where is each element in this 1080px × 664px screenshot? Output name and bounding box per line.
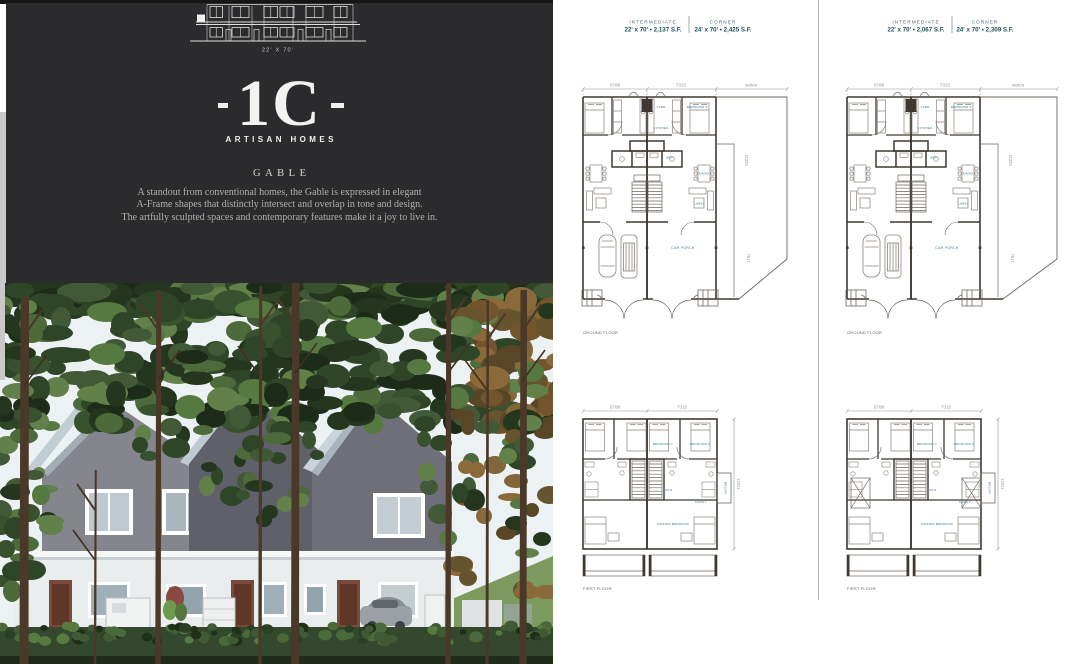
svg-text:12221: 12221 — [736, 478, 741, 490]
svg-text:BATH: BATH — [664, 488, 673, 492]
svg-text:7917: 7917 — [1010, 253, 1015, 263]
svg-text:BALCONY: BALCONY — [988, 482, 992, 495]
svg-text:CAR PORCH: CAR PORCH — [935, 246, 959, 250]
svg-text:7315: 7315 — [676, 83, 687, 88]
svg-text:11333: 11333 — [1008, 154, 1013, 166]
svg-text:FIRST FLOOR: FIRST FLOOR — [847, 586, 876, 591]
svg-text:11333: 11333 — [744, 154, 749, 166]
svg-text:24' x 70' • 2,425 S.F.: 24' x 70' • 2,425 S.F. — [694, 27, 751, 34]
svg-text:24' x 70' • 2,309 S.F.: 24' x 70' • 2,309 S.F. — [956, 27, 1013, 34]
svg-text:BALCONY: BALCONY — [724, 482, 728, 495]
svg-text:YARD: YARD — [656, 105, 666, 109]
svg-text:INTERMEDIATE: INTERMEDIATE — [629, 20, 676, 26]
svg-text:7315: 7315 — [940, 83, 951, 88]
svg-text:FAMILY: FAMILY — [695, 500, 707, 504]
svg-text:BEDROOM 3: BEDROOM 3 — [954, 442, 974, 446]
svg-text:BEDROOM 4: BEDROOM 4 — [951, 105, 971, 109]
svg-text:6788: 6788 — [610, 405, 621, 410]
svg-text:YARD: YARD — [920, 105, 930, 109]
svg-text:7315: 7315 — [677, 405, 688, 410]
svg-text:BEDROOM 3: BEDROOM 3 — [690, 442, 710, 446]
svg-text:BATH: BATH — [667, 156, 674, 160]
svg-text:FIRST FLOOR: FIRST FLOOR — [583, 586, 612, 591]
svg-text:MASTER BEDROOM: MASTER BEDROOM — [657, 522, 689, 526]
svg-text:CORNER: CORNER — [972, 20, 999, 26]
svg-text:varies: varies — [745, 83, 758, 88]
svg-text:MASTER BEDROOM: MASTER BEDROOM — [921, 522, 953, 526]
svg-text:DINING: DINING — [963, 172, 974, 176]
svg-text:DINING: DINING — [699, 172, 710, 176]
svg-text:GROUND FLOOR: GROUND FLOOR — [847, 330, 882, 335]
svg-text:6788: 6788 — [874, 83, 885, 88]
svg-text:BATH: BATH — [931, 156, 938, 160]
svg-text:KITCHEN: KITCHEN — [918, 126, 933, 130]
svg-text:7315: 7315 — [941, 405, 952, 410]
svg-text:BEDROOM 4: BEDROOM 4 — [687, 105, 707, 109]
svg-text:12221: 12221 — [1000, 478, 1005, 490]
svg-text:CAR PORCH: CAR PORCH — [671, 246, 695, 250]
svg-text:BEDROOM 2: BEDROOM 2 — [917, 442, 937, 446]
svg-text:BATH: BATH — [928, 488, 937, 492]
svg-text:LIVING: LIVING — [958, 202, 969, 206]
svg-text:CORNER: CORNER — [710, 20, 737, 26]
svg-text:GROUND FLOOR: GROUND FLOOR — [583, 330, 618, 335]
svg-text:LIVING: LIVING — [694, 202, 705, 206]
svg-text:KITCHEN: KITCHEN — [654, 126, 669, 130]
svg-text:22' x 70' • 2,137 S.F.: 22' x 70' • 2,137 S.F. — [624, 27, 681, 34]
svg-text:22' x 70' • 2,067 S.F.: 22' x 70' • 2,067 S.F. — [887, 27, 944, 34]
svg-text:6788: 6788 — [874, 405, 885, 410]
svg-text:7917: 7917 — [746, 253, 751, 263]
svg-text:varies: varies — [1012, 83, 1025, 88]
svg-text:6788: 6788 — [610, 83, 621, 88]
svg-text:INTERMEDIATE: INTERMEDIATE — [892, 20, 939, 26]
svg-text:BEDROOM 2: BEDROOM 2 — [653, 442, 673, 446]
